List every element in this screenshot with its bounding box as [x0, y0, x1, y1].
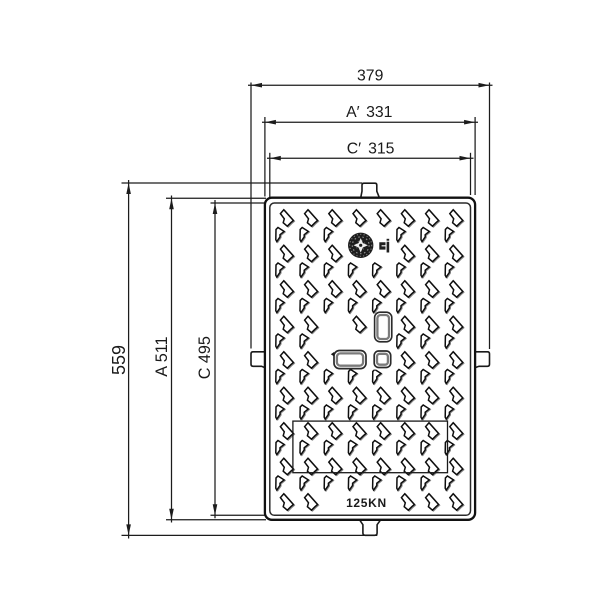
svg-text:C′315: C′315 — [347, 141, 395, 158]
svg-text:A′331: A′331 — [346, 104, 393, 121]
svg-text:C 495: C 495 — [196, 336, 214, 379]
svg-text:125KN: 125KN — [346, 496, 387, 510]
svg-text:379: 379 — [357, 67, 384, 84]
svg-text:A 511: A 511 — [153, 336, 171, 376]
svg-text:559: 559 — [109, 345, 129, 375]
